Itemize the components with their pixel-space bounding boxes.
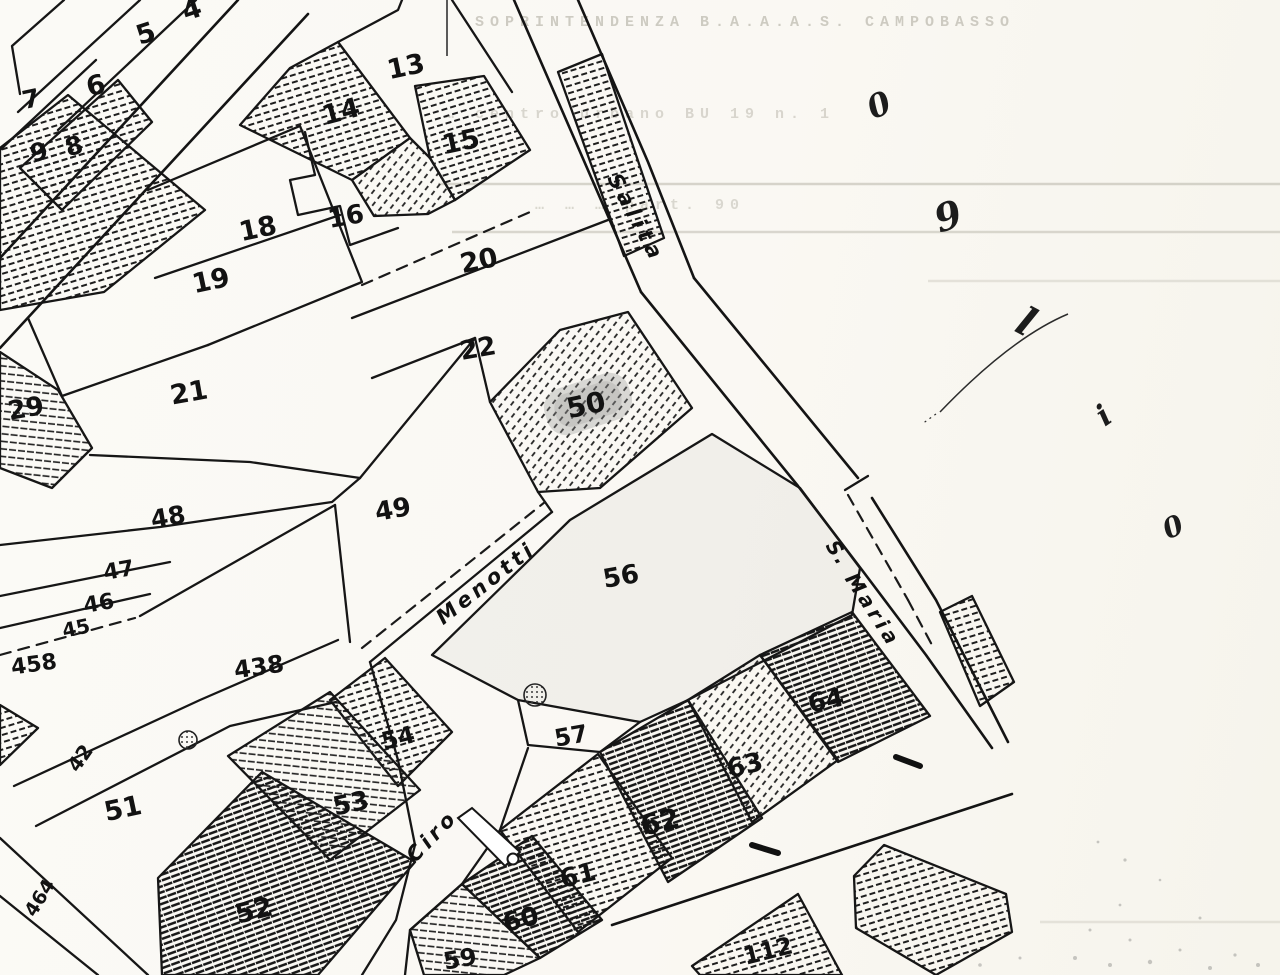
scanned-map-sheet: SOPRINTENDENZA B.A.A.A.S. CAMPOBASSO… ce…	[0, 0, 1280, 975]
parcel-label-19: 19	[189, 262, 232, 300]
handwritten-curve	[940, 314, 1068, 412]
handwritten-mark: 0	[861, 83, 897, 127]
gate-mark	[752, 845, 778, 853]
parcel-label-45: 45	[60, 613, 92, 642]
handwritten-mark: l	[1008, 298, 1043, 347]
parcel-label-56: 56	[601, 559, 642, 595]
handwritten-marks: 09li0	[861, 83, 1189, 546]
hatched-parcel	[0, 705, 38, 765]
parcel-label-48: 48	[148, 500, 187, 535]
parcel-label-20: 20	[457, 242, 500, 280]
handwritten-mark: 0	[1157, 508, 1189, 546]
parcel-label-42: 42	[62, 740, 98, 777]
handwritten-mark: 9	[928, 191, 967, 242]
parcel-label-5: 5	[132, 16, 159, 51]
parcel-label-29: 29	[6, 391, 47, 427]
street-label-ciro: Ciro	[401, 805, 462, 867]
handwritten-mark: i	[1089, 398, 1118, 433]
tree-symbol	[524, 684, 546, 706]
parcel-label-57: 57	[552, 719, 590, 752]
parcel-label-438: 438	[232, 650, 286, 685]
parcel-label-18: 18	[236, 210, 279, 248]
parcel-label-464: 464	[20, 875, 60, 920]
parcel-label-49: 49	[373, 492, 414, 528]
structure-symbol	[508, 854, 519, 865]
parcel-label-4: 4	[178, 0, 205, 28]
parcel-label-16: 16	[326, 199, 367, 235]
parcel-label-22: 22	[458, 331, 499, 367]
parcel-label-6: 6	[83, 69, 109, 104]
gate-mark	[896, 757, 920, 766]
parcel-label-21: 21	[168, 374, 210, 411]
tree-symbol	[179, 731, 197, 749]
parcel-label-458: 458	[10, 649, 59, 680]
parcel-label-7: 7	[19, 83, 42, 115]
parcel-label-13: 13	[384, 48, 427, 86]
hatched-band	[854, 845, 1012, 975]
parcel-label-47: 47	[102, 556, 137, 586]
parcel-label-51: 51	[101, 790, 144, 828]
handwritten-curve	[922, 414, 936, 424]
cadastral-map-scan: SalitaS.MariaMenottiCiro 456789131415161…	[0, 0, 1280, 975]
parcel-label-59: 59	[441, 942, 479, 975]
